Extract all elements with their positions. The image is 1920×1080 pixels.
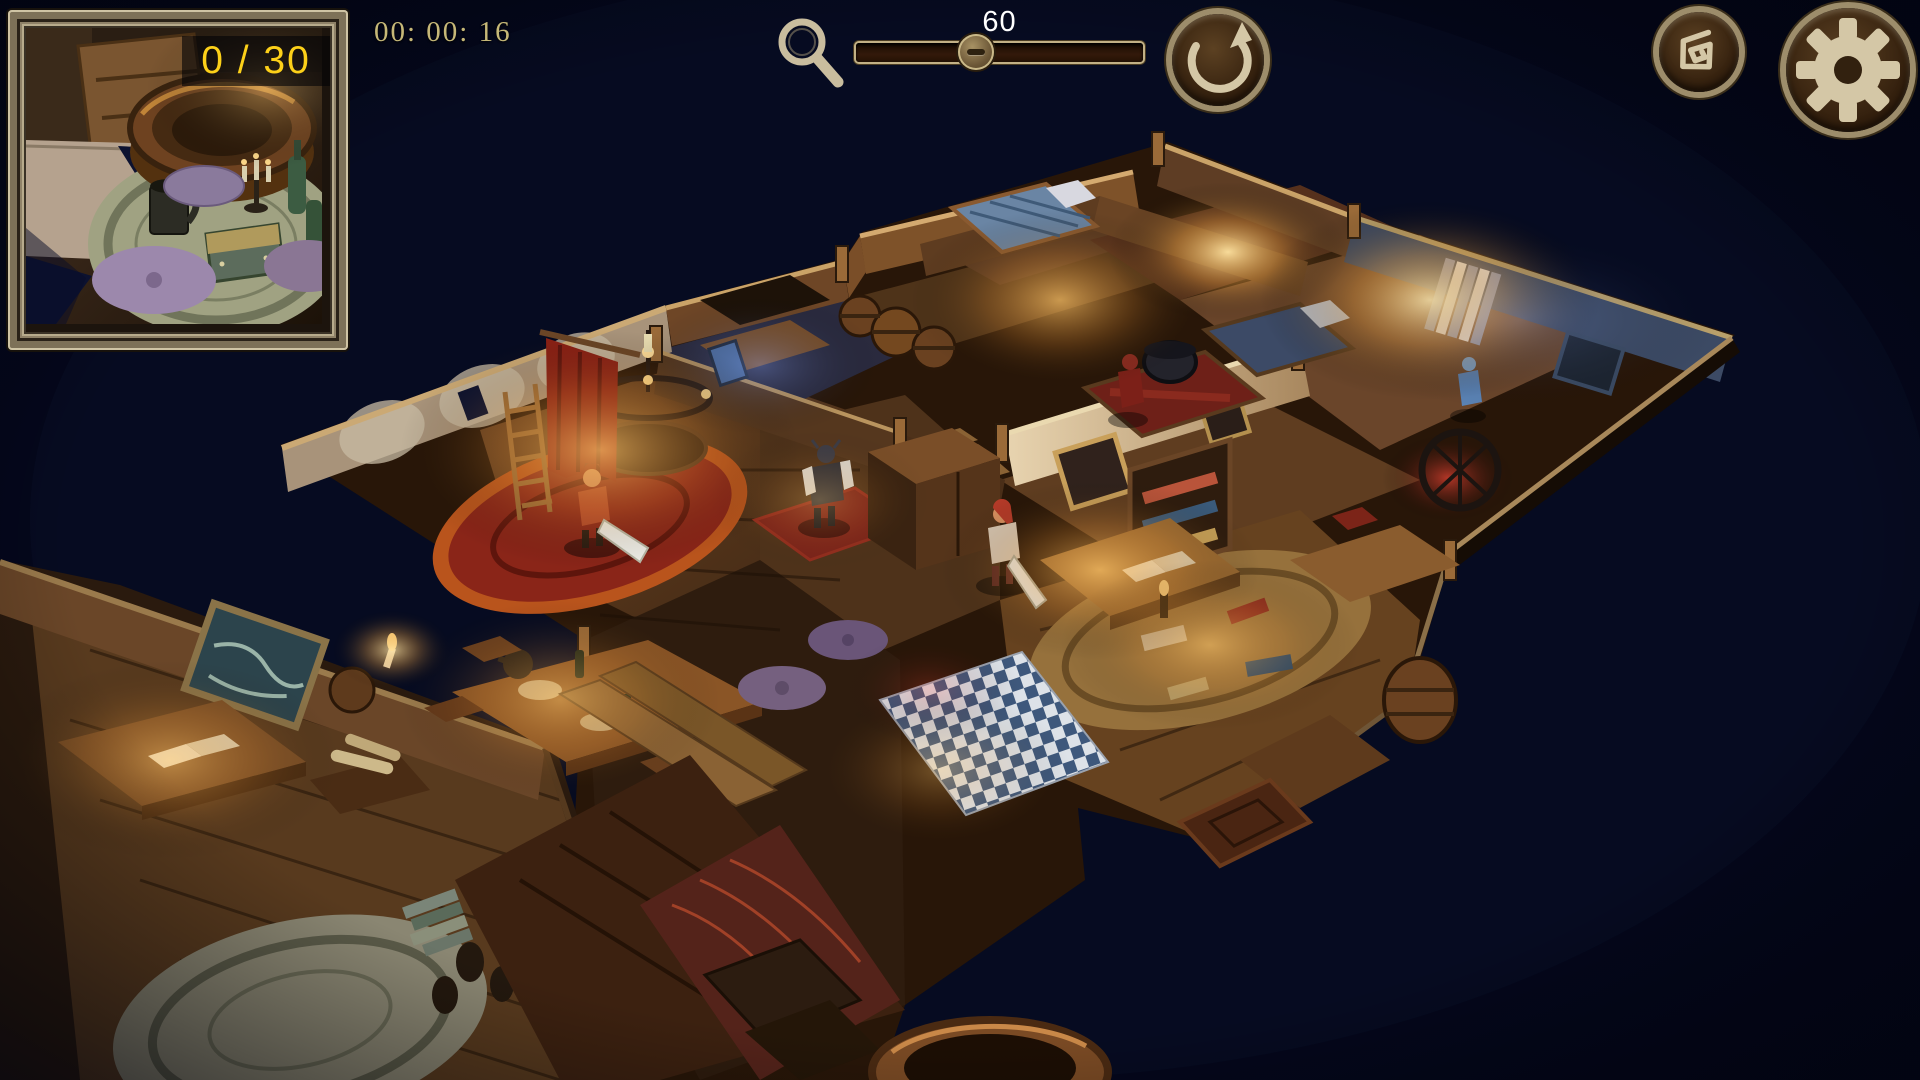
found-counter-text: 0 / 30: [201, 39, 311, 83]
gear-icon: [1786, 8, 1910, 132]
hint-button[interactable]: [1659, 12, 1739, 92]
slider-minus-dash: [967, 49, 985, 55]
magnifier-icon: [770, 16, 846, 116]
game-timer: 00: 00: 16: [374, 16, 512, 49]
objective-preview-image: 0 / 30: [22, 24, 334, 336]
zoom-value: 60: [856, 6, 1143, 39]
settings-button[interactable]: [1786, 8, 1910, 132]
zoom-slider-handle[interactable]: [958, 34, 994, 70]
spiral-icon: [1659, 12, 1739, 92]
objective-preview-panel[interactable]: 0 / 30: [8, 10, 348, 350]
zoom-control: 60: [770, 0, 1170, 110]
zoom-slider-track[interactable]: [856, 43, 1143, 62]
rotate-arrow-icon: [1172, 14, 1264, 106]
reset-camera-button[interactable]: [1172, 14, 1264, 106]
found-counter: 0 / 30: [182, 36, 330, 86]
